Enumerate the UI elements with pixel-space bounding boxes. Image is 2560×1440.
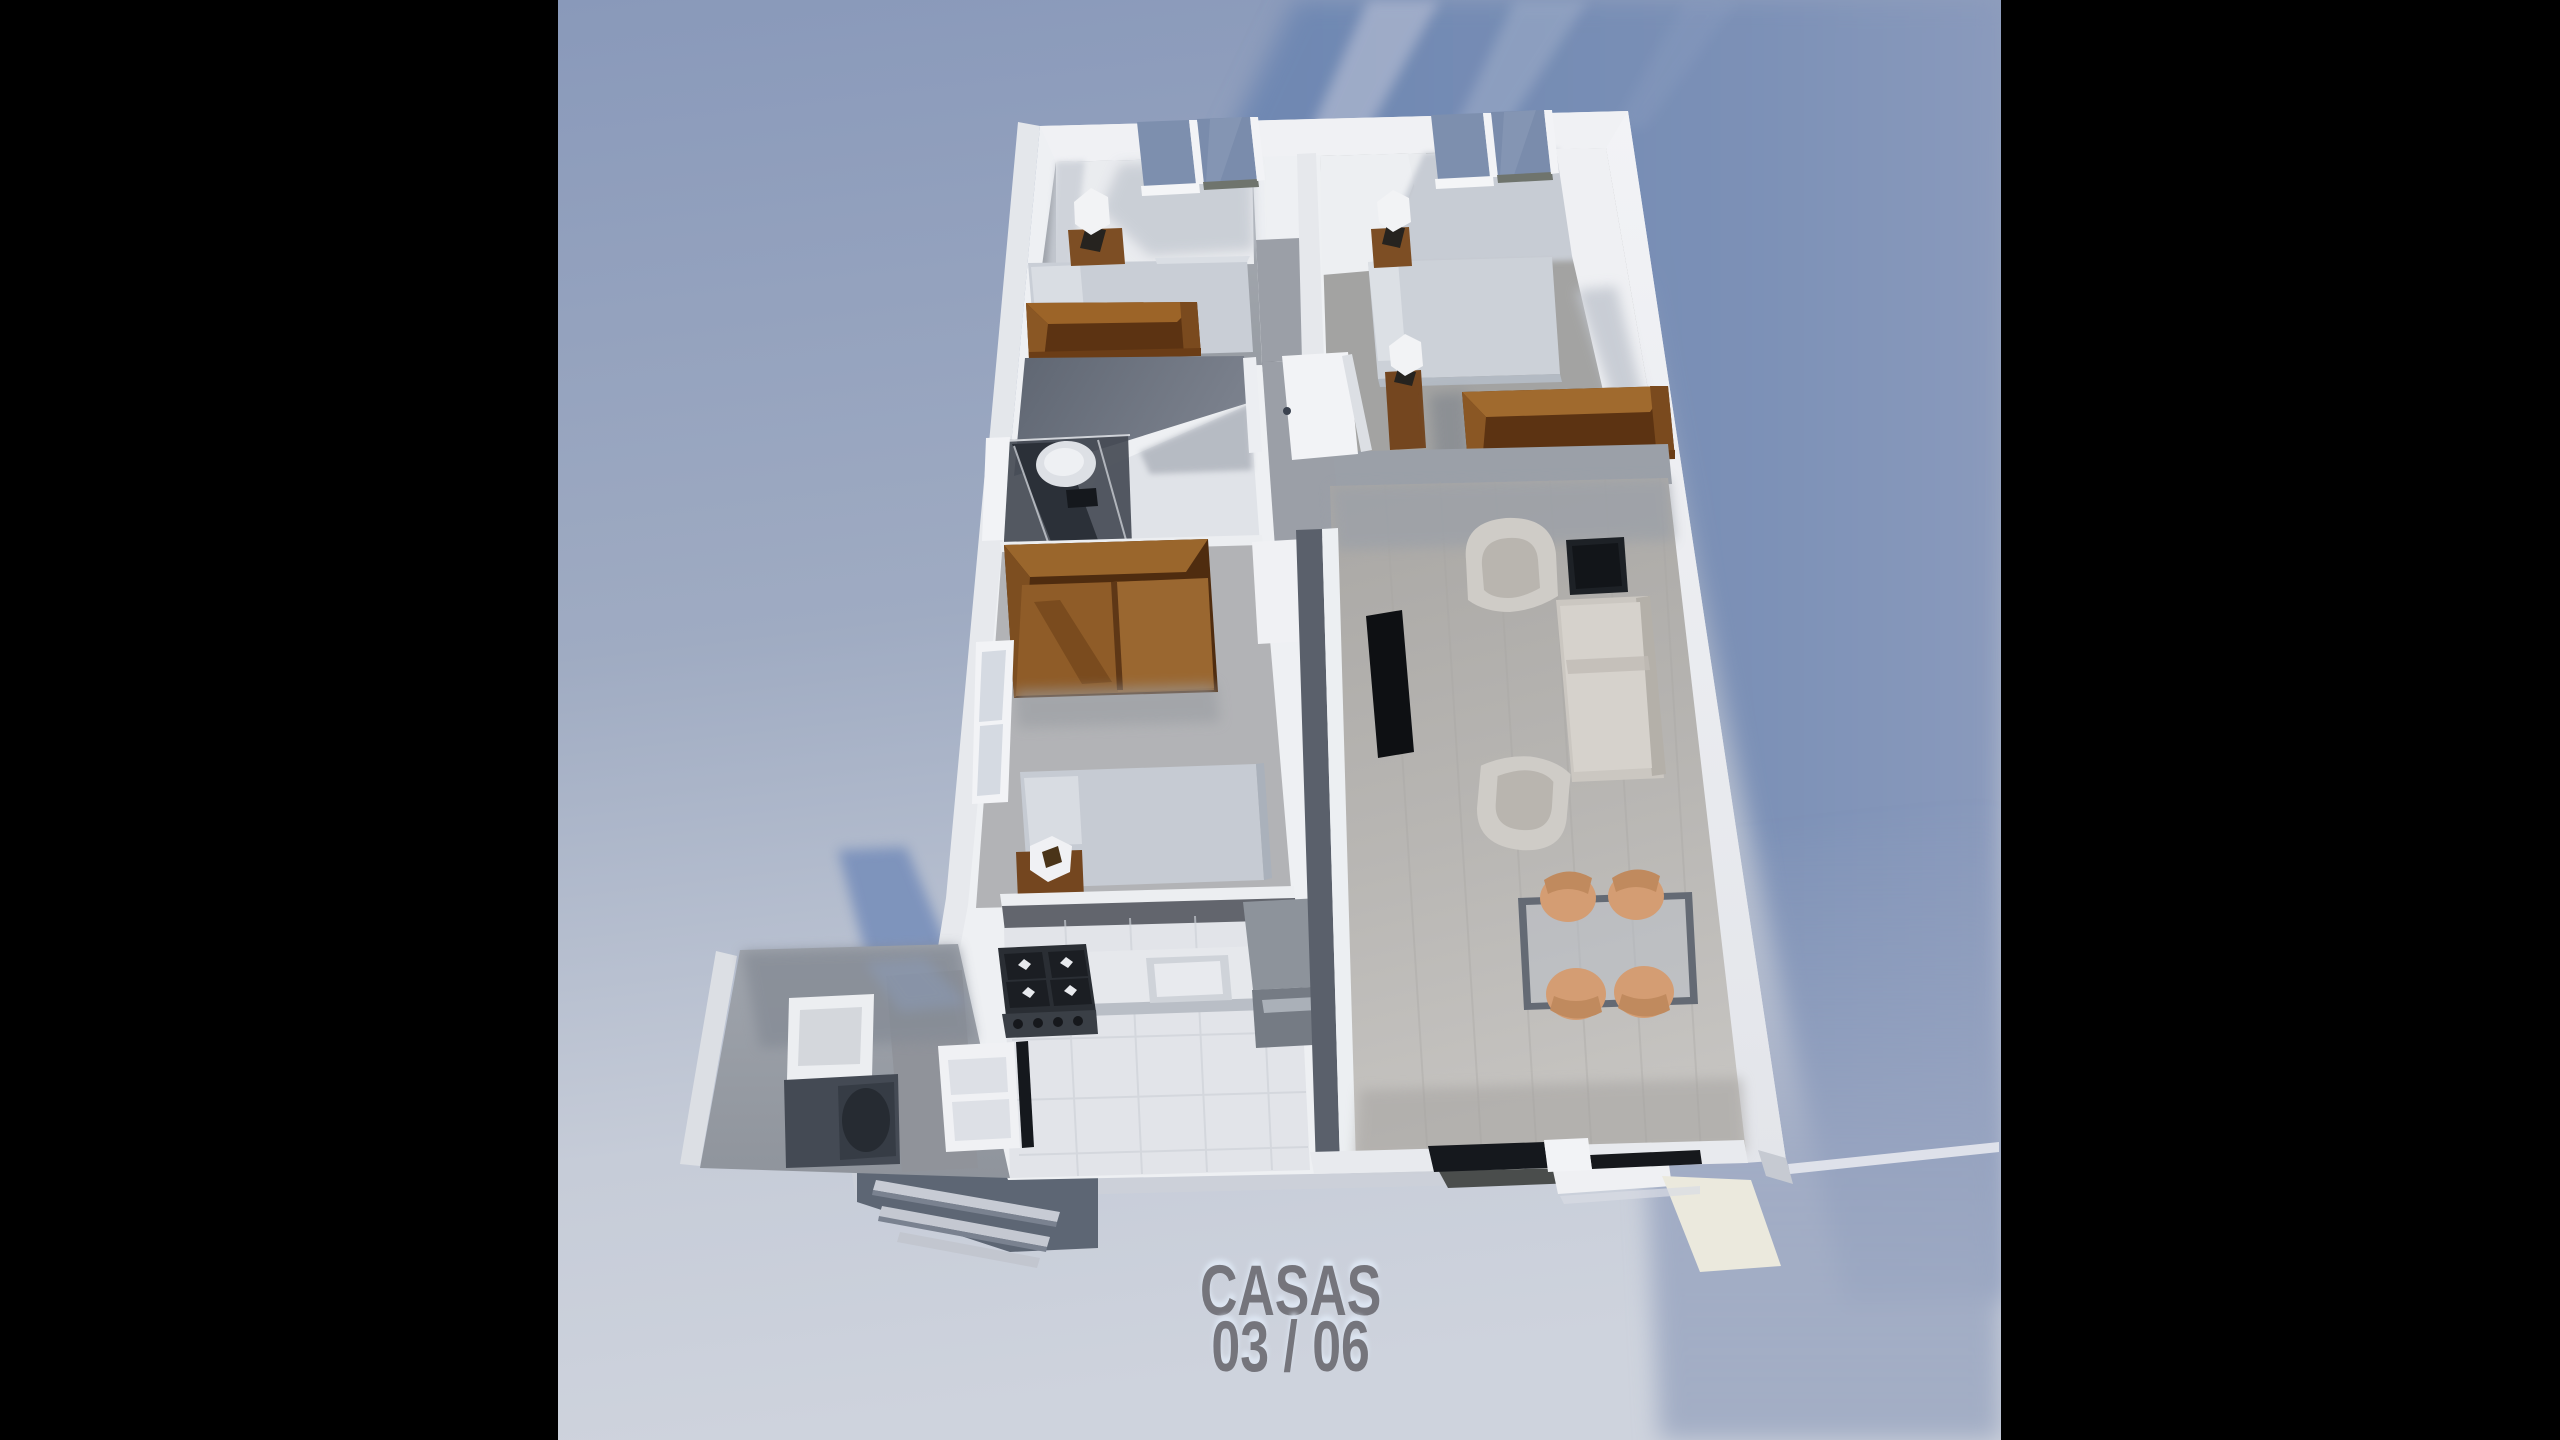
svg-text:03 / 06: 03 / 06 bbox=[1211, 1308, 1369, 1387]
